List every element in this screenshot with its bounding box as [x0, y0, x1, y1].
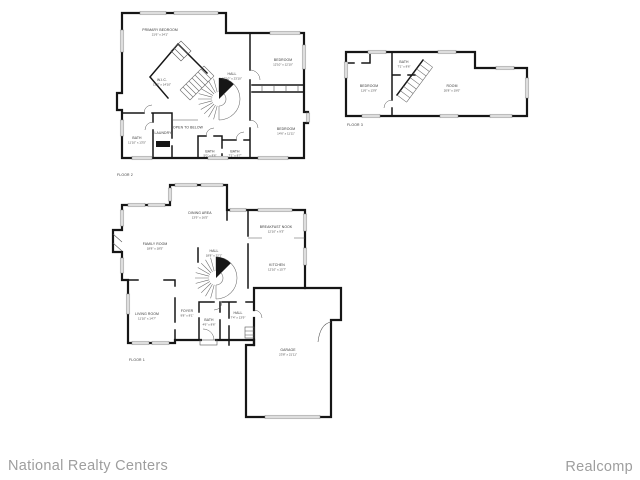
room-dims-bath-f1: 4'6" x 8'6" [202, 323, 215, 327]
room-dims-breakfast-nook: 12'10" x 9'3" [268, 230, 284, 234]
floor2-plan: PRIMARY BEDROOM 21'6" x 24'1" W.I.C. 13'… [117, 11, 310, 177]
room-label-kitchen: KITCHEN [269, 263, 285, 267]
floor1-plan: DINING AREA 13'9" x 16'5" FAMILY ROOM 18… [113, 183, 341, 419]
window [344, 62, 348, 78]
floor3-label: FLOOR 3 [347, 123, 363, 127]
room-label-bath-f1: BATH [204, 318, 214, 322]
window [132, 341, 149, 345]
floor2-interior-walls [122, 33, 304, 158]
floor1-stair-core [216, 257, 231, 278]
room-dims-bath-f2-left: 11'10" x 13'5" [128, 141, 146, 145]
floor3-interior-walls [346, 52, 423, 116]
garage-stoop [245, 327, 254, 338]
branding-national-realty-centers: National Realty Centers [8, 458, 168, 474]
floor2-straight-stairs [180, 66, 214, 100]
room-label-bath-f3: BATH [399, 60, 409, 64]
room-label-dining-area: DINING AREA [188, 211, 212, 215]
door-arc [384, 100, 392, 108]
floor2-wic-closet-hatch [171, 41, 191, 61]
room-dims-bath-f3: 7'1" x 8'6" [397, 65, 410, 69]
room-label-living-room: LIVING ROOM [135, 312, 159, 316]
floor1-label: FLOOR 1 [129, 358, 145, 362]
room-dims-room-f3: 20'8" x 19'0" [444, 89, 460, 93]
garage-door [265, 415, 320, 419]
room-label-primary-bedroom: PRIMARY BEDROOM [142, 28, 178, 32]
window [168, 188, 172, 201]
window [148, 203, 165, 207]
window [175, 183, 197, 187]
room-label-foyer: FOYER [181, 309, 194, 313]
room-label-room-f3: ROOM [446, 84, 457, 88]
room-label-open-to-below: OPEN TO BELOW [173, 126, 204, 130]
stoop-steps [245, 331, 254, 335]
floor2-label: FLOOR 2 [117, 173, 133, 177]
room-dims-bedroom-f3: 11'6" x 13'9" [361, 89, 377, 93]
room-label-laundry: LAUNDRY [155, 131, 173, 135]
room-dims-living-room: 11'10" x 14'7" [138, 317, 156, 321]
window [440, 114, 458, 118]
window [303, 214, 307, 231]
fireplace-hatch [113, 234, 122, 251]
room-label-garage: GARAGE [280, 348, 296, 352]
room-dims-foyer: 9'8" x 8'1" [180, 314, 193, 318]
window [140, 11, 166, 15]
floor2-stair-core [219, 78, 234, 99]
window [303, 248, 307, 265]
stoop-outline [245, 327, 254, 338]
room-dims-primary-bedroom: 21'6" x 24'1" [152, 33, 168, 37]
floor1-interior-walls [128, 210, 254, 345]
window [120, 210, 124, 226]
room-dims-hall-f1: 18'8" x 22'1" [206, 254, 222, 258]
window [306, 113, 310, 122]
window [362, 114, 380, 118]
floorplan-canvas: PRIMARY BEDROOM 21'6" x 24'1" W.I.C. 13'… [0, 0, 640, 480]
floor3-plan: BEDROOM 11'6" x 13'9" BATH 7'1" x 8'6" R… [344, 50, 529, 127]
window [120, 258, 124, 273]
window [490, 114, 512, 118]
room-dims-bedroom-tr: 12'10" x 12'10" [273, 63, 293, 67]
window [152, 341, 169, 345]
room-dims-kitchen: 12'10" x 15'7" [268, 268, 286, 272]
window [496, 66, 514, 70]
floor2-laundry-counter [156, 141, 170, 147]
window [174, 11, 218, 15]
room-dims-bath-f2-mid2: 7'1" x 8'7" [228, 154, 241, 158]
window [128, 203, 145, 207]
room-label-hall2-f1: HALL [234, 311, 243, 315]
room-dims-family-room: 18'8" x 18'5" [147, 247, 163, 251]
window [120, 30, 124, 52]
room-dims-hall-f2: 12'10" x 23'10" [222, 77, 242, 81]
floorplan-page: { "page": { "background": "#ffffff" }, "… [0, 0, 640, 480]
garage-curb-curve [318, 322, 331, 342]
room-label-hall-f1: HALL [210, 249, 219, 253]
window [132, 156, 152, 160]
room-label-breakfast-nook: BREAKFAST NOOK [260, 225, 293, 229]
window [302, 45, 306, 69]
window [201, 183, 223, 187]
window [120, 120, 124, 136]
room-label-wic: W.I.C. [157, 78, 167, 82]
window [258, 156, 288, 160]
window [258, 208, 292, 212]
room-dims-wic: 13'2" x 14'10" [153, 83, 171, 87]
window [230, 208, 246, 212]
room-label-hall-f2: HALL [228, 72, 237, 76]
room-dims-bath-f2-mid1: 5'0" x 8'6" [203, 154, 216, 158]
window [368, 50, 386, 54]
floor1-windows [120, 183, 320, 419]
branding-realcomp: Realcomp [565, 459, 633, 475]
room-label-family-room: FAMILY ROOM [143, 242, 168, 246]
room-label-bedroom-tr: BEDROOM [274, 58, 292, 62]
window [525, 78, 529, 98]
floor2-closet-ticks [172, 85, 298, 120]
window [270, 31, 300, 35]
room-label-bedroom-br: BEDROOM [277, 127, 295, 131]
room-dims-dining-area: 13'9" x 16'5" [192, 216, 208, 220]
window [438, 50, 456, 54]
room-dims-hall2-f1: 7'4" x 13'9" [231, 316, 246, 320]
room-label-bedroom-f3: BEDROOM [360, 84, 378, 88]
room-label-bath-f2-left: BATH [132, 136, 142, 140]
room-dims-garage: 23'8" x 21'11" [279, 353, 297, 357]
window [126, 294, 130, 314]
room-dims-bedroom-br: 14'6" x 11'11" [277, 132, 295, 136]
